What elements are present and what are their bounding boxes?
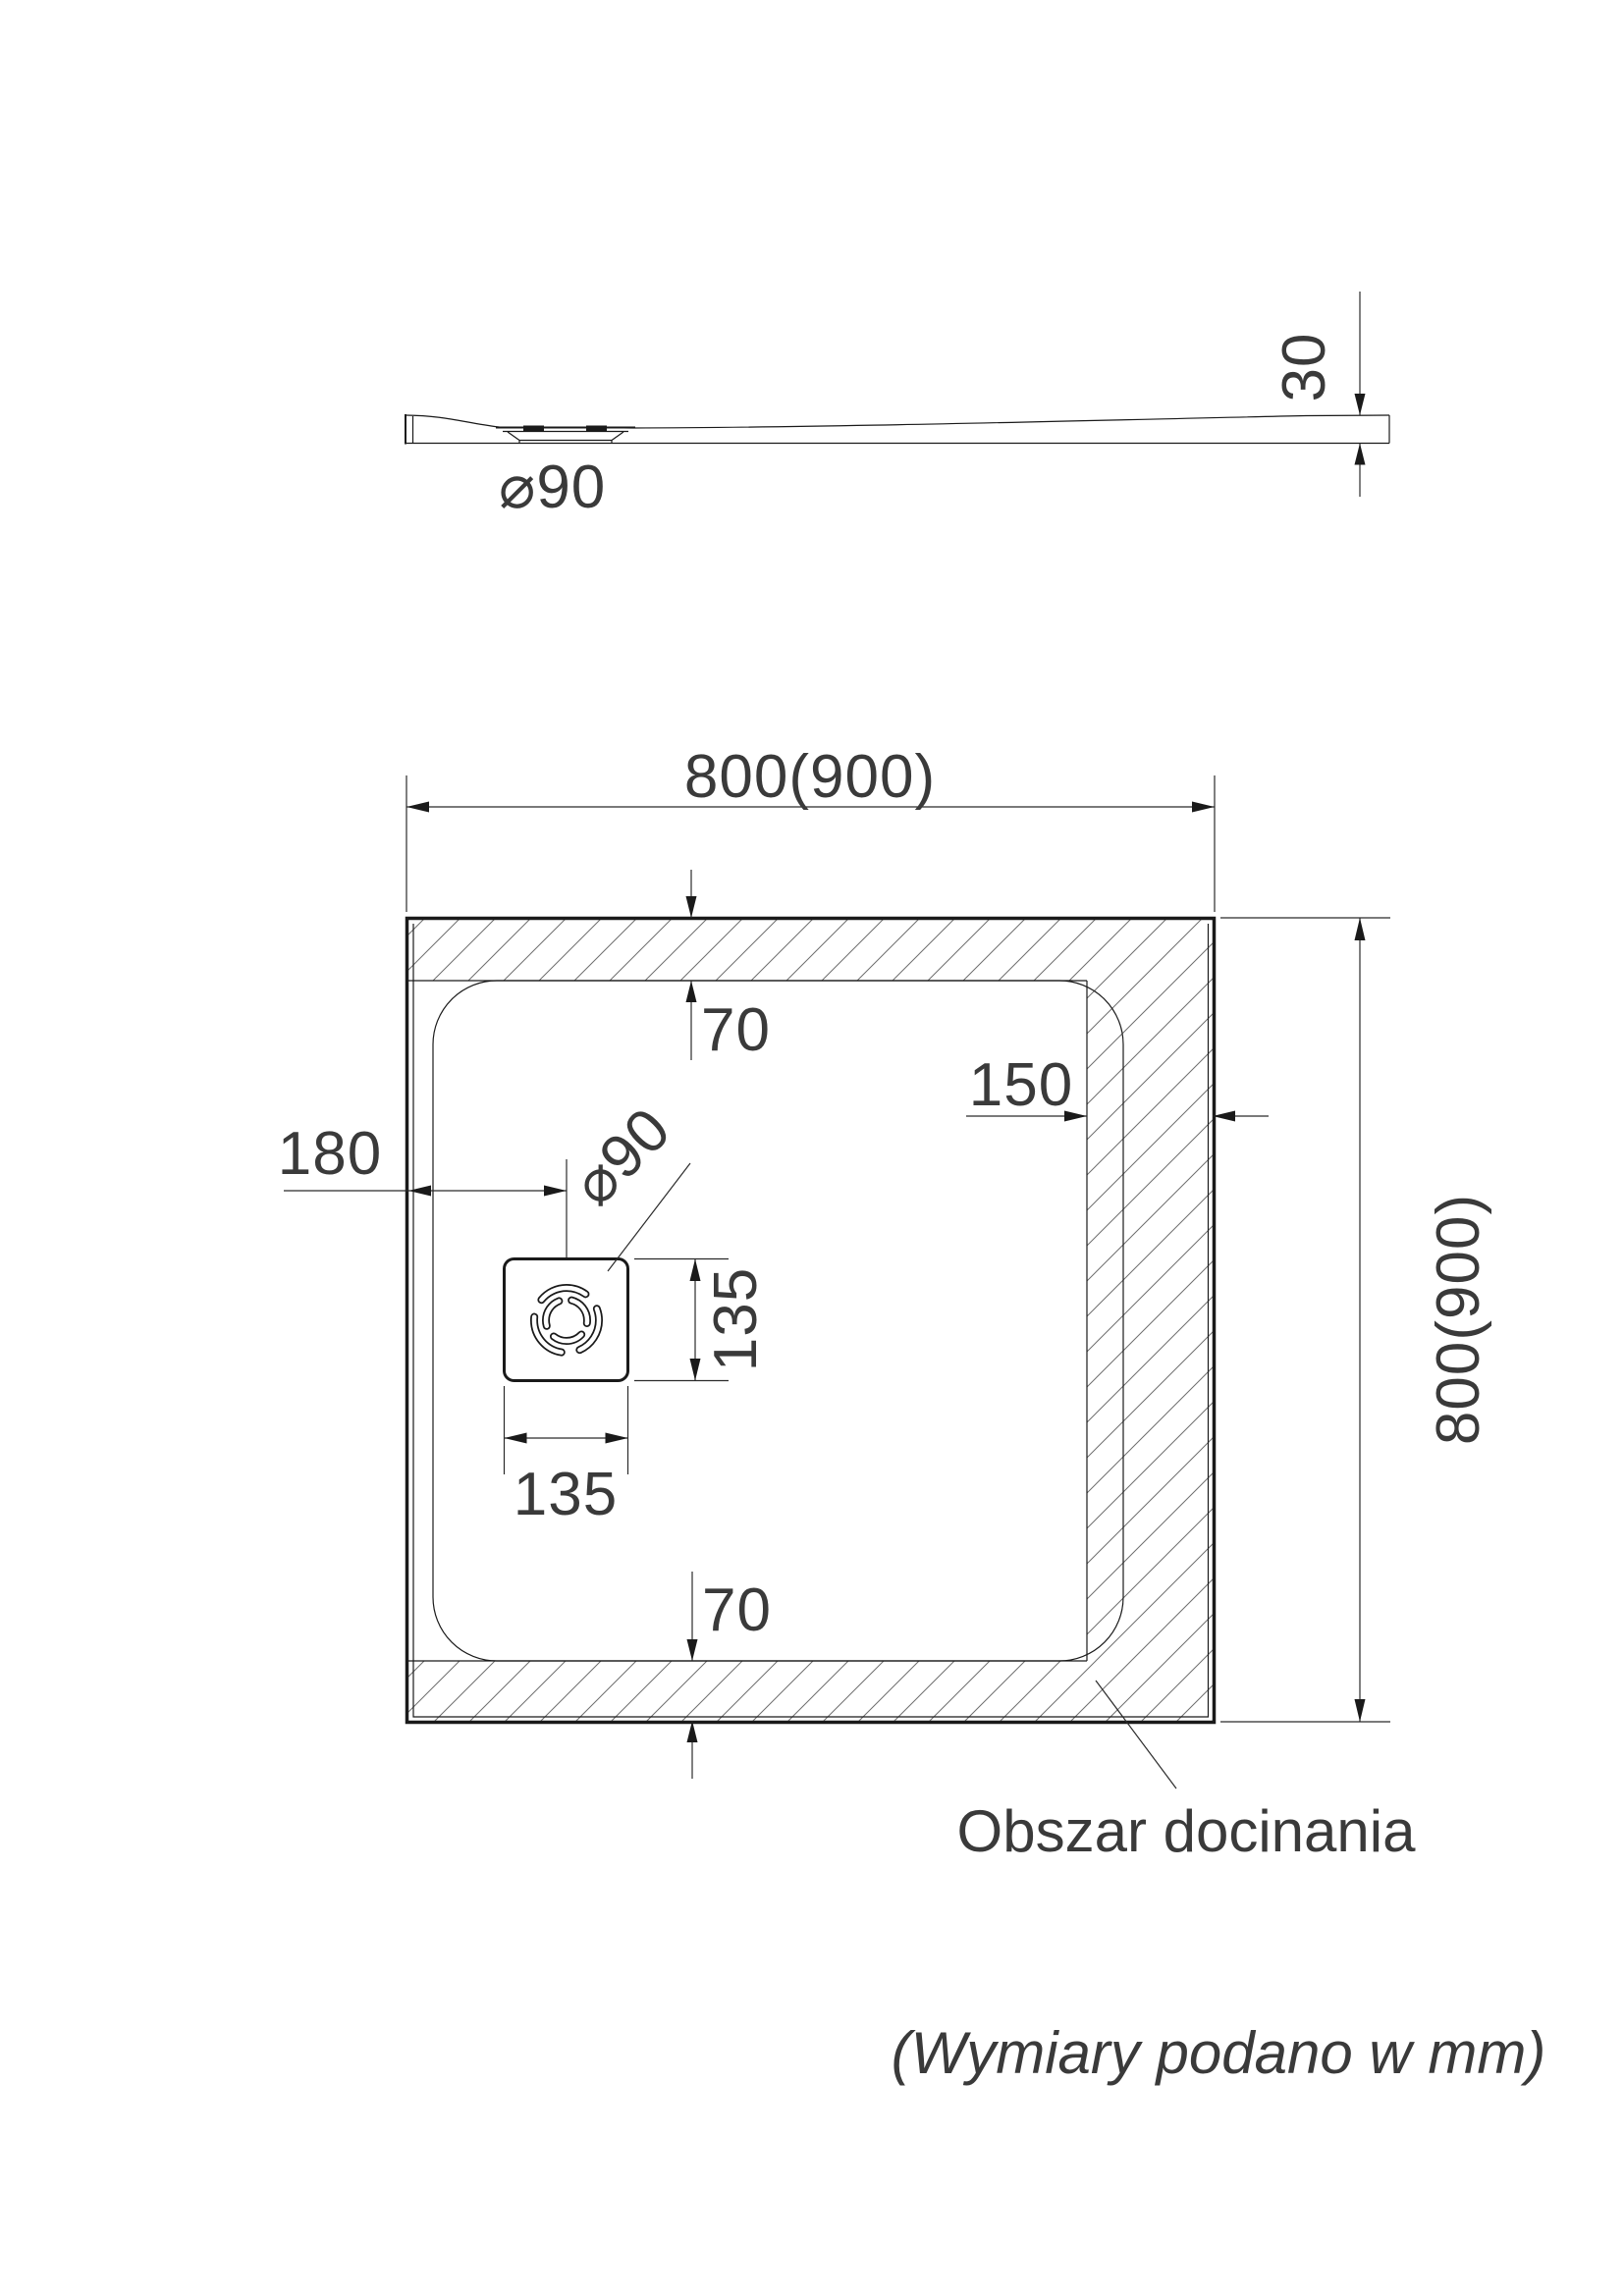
side-drain-diameter-label: ⌀90: [499, 454, 606, 521]
drain-width-arrow-right: [606, 1433, 628, 1444]
units-note: (Wymiary podano w mm): [892, 2020, 1546, 2086]
height-dimension: 800(900): [1220, 918, 1492, 1722]
thickness-dimension: 30: [1271, 292, 1366, 497]
bottom-inset-arrow-down: [687, 1639, 698, 1661]
plan-drain-diameter-label: ⌀90: [560, 1095, 683, 1218]
height-label: 800(900): [1425, 1194, 1492, 1445]
thickness-arrow-up: [1355, 444, 1366, 465]
drain-height-label: 135: [702, 1267, 770, 1371]
top-inset-label: 70: [701, 996, 771, 1064]
width-arrow-right: [1192, 802, 1215, 813]
thickness-label: 30: [1271, 333, 1338, 402]
drawing-page: ⌀90 30: [0, 0, 1624, 2296]
height-arrow-bottom: [1355, 1699, 1366, 1722]
profile-drain-detail: [496, 426, 635, 444]
drain-width-dimension: 135: [505, 1386, 628, 1528]
drain-offset-dimension: 180: [278, 1120, 567, 1257]
right-inset-label: 150: [969, 1051, 1073, 1119]
right-inset-arrow-left: [1213, 1111, 1235, 1122]
drain-assembly: [505, 1259, 628, 1381]
top-inset-arrow-down: [686, 896, 697, 918]
trim-area-label: Obszar docinania: [957, 1798, 1417, 1864]
drain-offset-arrow-right: [544, 1186, 567, 1197]
width-arrow-left: [406, 802, 429, 813]
drain-offset-arrow-left: [408, 1186, 431, 1197]
technical-drawing-canvas: ⌀90 30: [0, 0, 1624, 2296]
drain-height-arrow-up: [690, 1259, 701, 1282]
drain-seal-left: [523, 426, 544, 432]
drain-height-arrow-down: [690, 1359, 701, 1381]
width-label: 800(900): [684, 743, 936, 811]
drain-width-arrow-left: [505, 1433, 527, 1444]
drain-square: [505, 1259, 628, 1381]
thickness-arrow-down: [1355, 394, 1366, 415]
drain-diameter-callout: ⌀90: [560, 1095, 690, 1271]
drain-trap-outline: [508, 432, 623, 444]
plan-view: 800(900) 800(900) 70 150: [278, 743, 1492, 1864]
drain-width-label: 135: [514, 1461, 618, 1528]
bottom-inset-arrow-up: [687, 1721, 698, 1742]
top-inset-arrow-up: [686, 981, 697, 1002]
width-dimension: 800(900): [406, 743, 1215, 912]
side-profile-view: ⌀90 30: [406, 292, 1389, 521]
drain-offset-label: 180: [278, 1120, 382, 1188]
bottom-inset-label: 70: [702, 1576, 772, 1644]
drain-seal-right: [586, 426, 607, 432]
height-arrow-top: [1355, 918, 1366, 940]
drain-height-dimension: 135: [634, 1259, 770, 1381]
profile-top-edge: [406, 415, 1389, 428]
